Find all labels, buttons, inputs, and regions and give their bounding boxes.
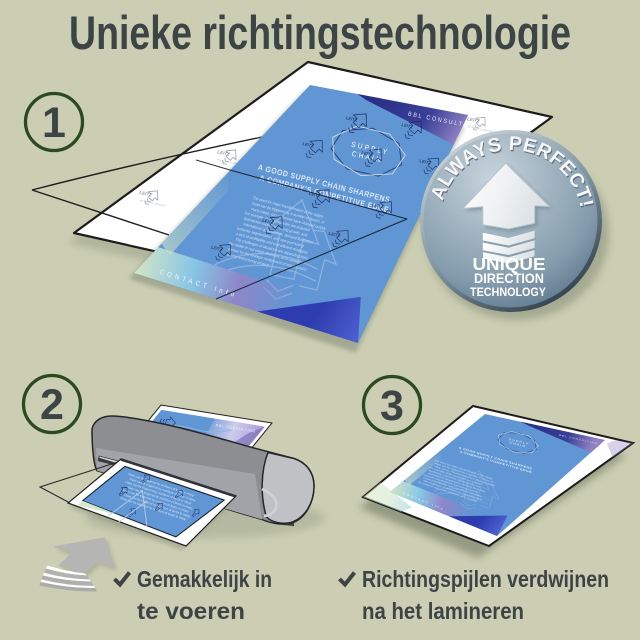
svg-text:Gemakkelijk in: Gemakkelijk in <box>137 566 272 592</box>
svg-text:TECHNOLOGY: TECHNOLOGY <box>470 285 546 299</box>
svg-text:Richtingspijlen verdwijnen: Richtingspijlen verdwijnen <box>362 566 609 592</box>
svg-text:1: 1 <box>42 99 66 147</box>
svg-text:2: 2 <box>40 381 64 429</box>
svg-text:na het lamineren: na het lamineren <box>362 598 524 624</box>
svg-text:DIRECTION: DIRECTION <box>474 271 544 286</box>
svg-text:3: 3 <box>380 382 404 430</box>
svg-text:te voeren: te voeren <box>137 598 245 624</box>
svg-text:Unieke richtingstechnologie: Unieke richtingstechnologie <box>69 6 571 59</box>
